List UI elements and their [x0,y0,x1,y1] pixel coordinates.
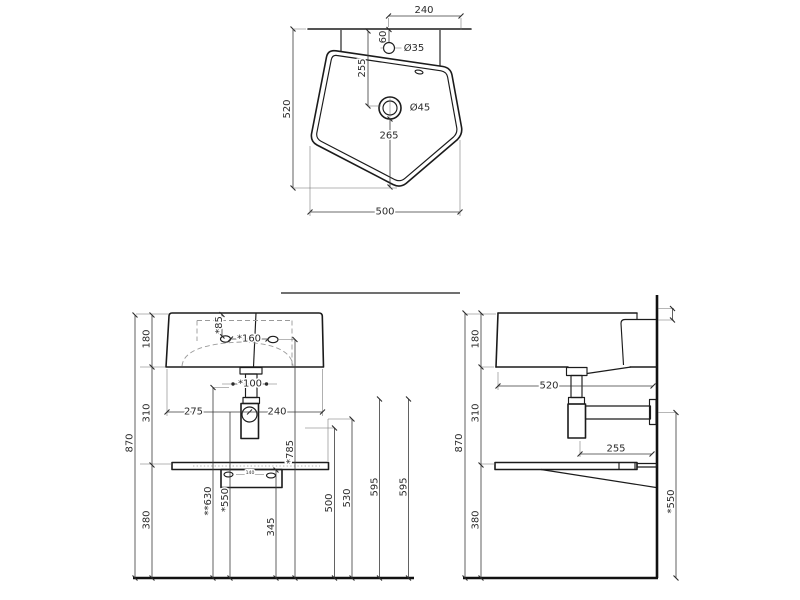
trap-nut [243,398,260,404]
dim-label-bracket-holes: 140 [246,470,255,476]
tailpipe-side [571,376,582,398]
basin-front-edge [496,313,498,367]
dim-label-mid-height: 310 [471,403,482,422]
dim-240-extensions [389,18,462,30]
overflow-slot [415,69,424,74]
bottle-trap [241,404,259,439]
trap-union [242,407,257,422]
drain-flange-side [567,368,588,376]
bracket-hole-right [267,473,276,478]
shelf-side [495,463,637,470]
top-view: 240 60 Ø35 255 Ø45 265 520 500 [282,5,471,218]
dim-label-basin-height: 180 [142,329,153,348]
hidden-bowl-curve [182,342,293,366]
dim-label-shelf-clearance: 345 [266,517,277,536]
front-view: 140 870 180 310 380 *85 *160 *100 275 24… [125,293,461,578]
dim-label-ref-530: 530 [342,488,353,507]
dim-label-depth: 520 [539,381,558,392]
dim-label-tap-offset: 60 [378,31,389,44]
trap-nut-side [569,398,585,405]
dim-label-ref-500: 500 [324,493,335,512]
side-view: 870 180 310 380 520 255 *550 [454,295,677,578]
dim-label-total-height: 870 [125,433,136,452]
bracket-hole-left [224,472,233,477]
waste-pipe-to-wall [586,406,651,419]
shelf-bracket-slope [541,470,656,488]
dim-label-tap-height: *785 [285,440,296,464]
shelf-bracket-mount [619,463,635,470]
dim-label-drain-from-right: 240 [267,407,286,418]
dim-label-drain-from-front: 265 [379,131,398,142]
dim-label-shelf-depth: 255 [606,444,625,455]
dim-label-total-height: 870 [454,433,465,452]
technical-drawing-page: 240 60 Ø35 255 Ø45 265 520 500 [0,0,800,600]
dim-label-pipe-height: *550 [666,489,677,513]
dim-label-ref-595-a: 595 [370,477,381,496]
washbasin-dimension-drawing: 240 60 Ø35 255 Ø45 265 520 500 [0,0,800,600]
dim-100-dot-left [231,382,234,385]
dim-label-tap-from-top: *85 [214,316,225,334]
dim-label-drain-from-back: 255 [357,58,368,77]
dim-label-mid-height: 310 [142,403,153,422]
dim-label-drain-diameter: Ø45 [410,102,431,114]
dim-label-outlet-height: **630 [203,486,214,515]
dim-label-rim-width: 240 [414,5,433,16]
dim-label-lower-height: 380 [471,510,482,529]
dim-500-extensions [310,140,460,216]
tap-hole-right [268,336,278,342]
dim-label-tap-spacing: *160 [237,334,261,345]
dim-label-tap-diameter: Ø35 [404,42,425,54]
dim-100-dot-right [265,382,268,385]
basin-underside-slope [587,367,631,374]
dim-label-lower-height: 380 [142,510,153,529]
rear-ledge [621,320,656,366]
dim-label-basin-height: 180 [471,329,482,348]
dim-label-depth: 520 [282,99,293,118]
dim-label-drain-from-left: 275 [184,407,203,418]
shelf-wall-rail [637,464,657,468]
dim-label-ref-595-b: 595 [399,477,410,496]
dim-label-width: 500 [375,207,394,218]
drain-flange [240,368,262,375]
tap-hole-left [221,336,231,342]
bottle-trap-side [568,404,586,438]
dim-label-trap-outlet-height: *550 [220,488,231,512]
dim-label-outlet-hole: *100 [238,379,262,390]
